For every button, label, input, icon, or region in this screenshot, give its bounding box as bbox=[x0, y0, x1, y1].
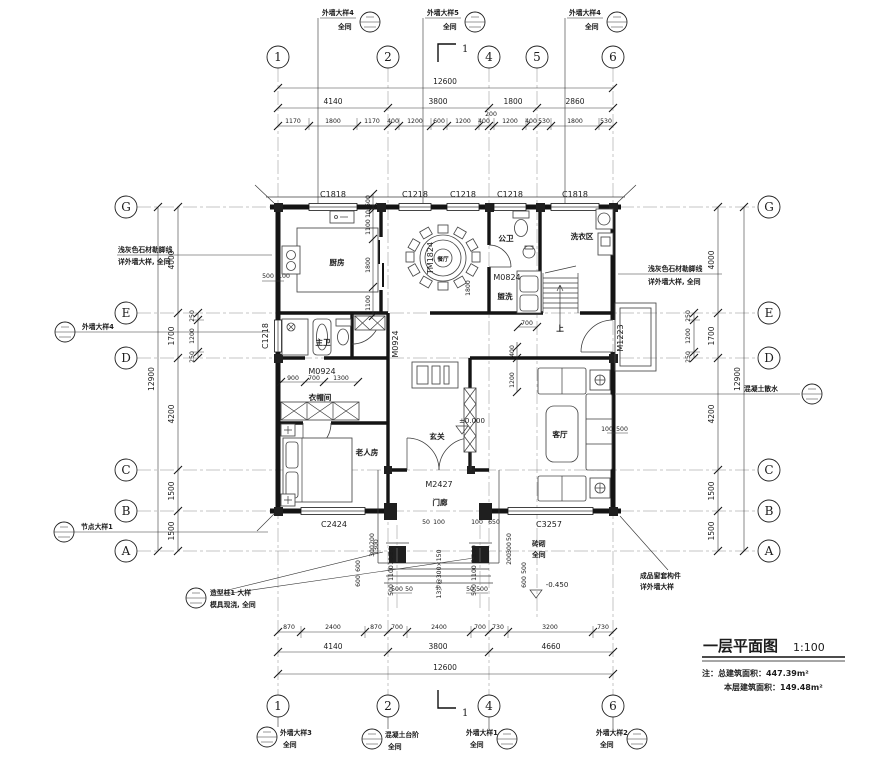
code-c1218-3: C1218 bbox=[497, 190, 523, 199]
grid-label-bottom: 2 bbox=[384, 699, 392, 713]
room-elder: 老人房 bbox=[356, 447, 379, 457]
callout-bot1-sub: 全同 bbox=[282, 740, 297, 749]
dim-right-total: 12900 bbox=[733, 367, 742, 391]
dim-porch-chain: 600 bbox=[521, 576, 528, 588]
dim-top-axis: 3800 bbox=[428, 97, 447, 106]
floor-area: 本层建筑面积：149.48m² bbox=[723, 682, 823, 692]
drawing-title: 一层平面图 bbox=[703, 637, 778, 655]
callout-bot2-label: 混凝土台阶 bbox=[385, 730, 419, 739]
door-m2427-entry bbox=[407, 438, 471, 470]
dim-kitchen: 1800 bbox=[365, 257, 372, 273]
dim-bottom-axis: 4140 bbox=[323, 642, 342, 651]
code-c1818-2: C1818 bbox=[562, 190, 588, 199]
dim-top-detail: 1200 bbox=[407, 118, 423, 125]
porch-dims: 500 50 50 500 200 300 600 600 50 300 200… bbox=[355, 533, 528, 599]
dim-top-detail: 1200 bbox=[455, 118, 471, 125]
code-m1223: M1223 bbox=[616, 324, 625, 351]
room-guest-bath: 公卫 bbox=[498, 234, 514, 243]
code-c2424: C2424 bbox=[321, 520, 347, 529]
dim-porch-col: 100 bbox=[388, 553, 395, 565]
grid-label-top: 1 bbox=[274, 50, 282, 64]
dim-left-detail: 250 bbox=[189, 351, 196, 363]
code-c1218-1: C1218 bbox=[402, 190, 428, 199]
dim-top-detail: 1170 bbox=[364, 118, 380, 125]
dim-top-detail: 200 bbox=[485, 111, 497, 118]
grid-label-bottom: 1 bbox=[274, 699, 282, 713]
guest-bath-fixtures bbox=[513, 211, 535, 258]
room-closet: 衣帽间 bbox=[309, 392, 332, 402]
dim-bottom-detail: 730 bbox=[492, 624, 504, 631]
window-c1218-dining-2 bbox=[447, 204, 479, 211]
grid-label-top: 5 bbox=[533, 50, 541, 64]
window-c1818-laundry bbox=[551, 204, 599, 211]
section-mark-top: 1 bbox=[462, 44, 468, 55]
grid-label-top: 6 bbox=[609, 50, 617, 64]
code-m0924-bath: M0924 bbox=[391, 330, 400, 357]
room-living: 客厅 bbox=[552, 429, 568, 439]
dim-living-bottom: 100 bbox=[471, 519, 483, 526]
grid-label-left: D bbox=[121, 351, 131, 365]
note-window-trim-1: 成品窗套构件 bbox=[640, 571, 681, 580]
dim-left-detail: 1200 bbox=[189, 328, 196, 344]
level-zero: ±0.000 bbox=[459, 417, 485, 425]
dim-right-axis: 1500 bbox=[707, 481, 716, 500]
door-m1223 bbox=[581, 320, 613, 352]
dim-kitchen: 1100 bbox=[365, 295, 372, 311]
note-prefix: 注： bbox=[702, 668, 718, 678]
note-stone-left-1: 浅灰色石材勒脚线 bbox=[118, 245, 173, 254]
dim-bottom-detail: 730 bbox=[597, 624, 609, 631]
room-kitchen: 厨房 bbox=[329, 257, 345, 267]
callout-bot4-label: 外墙大样2 bbox=[596, 728, 628, 737]
callout-column-label: 造型柱1 大样 bbox=[210, 588, 251, 597]
note-apron: 混凝土散水 bbox=[744, 384, 778, 393]
grid-label-left: B bbox=[122, 504, 131, 518]
level-porch: -0.450 bbox=[546, 581, 569, 589]
dim-bottom-detail: 700 bbox=[474, 624, 486, 631]
section-mark-bottom: 1 bbox=[462, 708, 468, 719]
master-bath-fixtures bbox=[282, 319, 351, 355]
grid-label-right: E bbox=[765, 306, 774, 320]
dim-left-axis: 1700 bbox=[167, 326, 176, 345]
grid-label-right: G bbox=[764, 200, 774, 214]
dim-living: 400 bbox=[509, 345, 516, 357]
grid-label-bottom: 4 bbox=[485, 699, 493, 713]
dim-top-detail: 530 bbox=[538, 118, 550, 125]
dim-right-axis: 1500 bbox=[707, 521, 716, 540]
dim-kitchen-left: 100 bbox=[278, 273, 290, 280]
window-c1218-guest-bath bbox=[494, 204, 526, 211]
stairs-up-label: 上 bbox=[556, 323, 564, 333]
dim-top-detail: 530 bbox=[600, 118, 612, 125]
room-porch: 门廊 bbox=[432, 497, 448, 507]
dim-dining-table: 1800 bbox=[465, 280, 472, 296]
room-foyer: 玄关 bbox=[429, 431, 445, 441]
grid-label-right: C bbox=[764, 463, 773, 477]
dim-top-detail: 400 bbox=[387, 118, 399, 125]
dim-closet: 1300 bbox=[333, 375, 349, 382]
stairs bbox=[543, 266, 578, 332]
stair-note: 13步@300×150 bbox=[435, 549, 443, 598]
dim-left-detail: 250 bbox=[189, 310, 196, 322]
total-area: 总建筑面积：447.39m² bbox=[718, 668, 809, 678]
dim-kitchen: 100 bbox=[365, 206, 372, 218]
dim-left-axis: 1500 bbox=[167, 521, 176, 540]
window-c1818-kitchen bbox=[309, 204, 357, 211]
dim-wash-width: 700 bbox=[521, 320, 533, 327]
grid-label-top: 4 bbox=[485, 50, 493, 64]
dim-living: 1200 bbox=[509, 372, 516, 388]
note-window-trim-2: 详外墙大样 bbox=[640, 582, 674, 591]
dim-top-detail: 400 bbox=[478, 118, 490, 125]
code-c1218-left: C1218 bbox=[261, 323, 270, 349]
dim-top-detail: 600 bbox=[433, 118, 445, 125]
callout-bot1-label: 外墙大样3 bbox=[280, 728, 312, 737]
callout-bot3-sub: 全同 bbox=[469, 740, 484, 749]
grid-label-left: E bbox=[122, 306, 131, 320]
dim-kitchen-left: 500 bbox=[262, 273, 274, 280]
drawing-scale: 1:100 bbox=[793, 641, 825, 654]
callout-column-sub: 模具现浇, 全同 bbox=[210, 600, 256, 609]
dim-porch-chain: 50 bbox=[506, 533, 513, 541]
callout-bot2-sub: 全同 bbox=[387, 742, 402, 751]
window-c3257-living bbox=[508, 508, 593, 515]
room-laundry: 洗衣区 bbox=[571, 231, 594, 241]
dim-top-detail: 1800 bbox=[567, 118, 583, 125]
callout-top2-label: 外墙大样5 bbox=[427, 8, 459, 17]
dim-right-axis: 4200 bbox=[707, 404, 716, 423]
dim-top-detail: 1170 bbox=[285, 118, 301, 125]
room-master-bath: 主卫 bbox=[315, 337, 331, 347]
callout-left2-label: 节点大样1 bbox=[81, 522, 113, 531]
code-m0824: M0824 bbox=[493, 273, 520, 282]
grid-label-right: B bbox=[765, 504, 774, 518]
living-room-furniture bbox=[538, 368, 612, 501]
dim-porch-col: 1100 bbox=[471, 565, 478, 581]
dim-closet: 700 bbox=[308, 375, 320, 382]
dim-bottom-detail: 870 bbox=[283, 624, 295, 631]
dim-right-detail: 1200 bbox=[685, 328, 692, 344]
note-stone-right-2: 详外墙大样, 全同 bbox=[648, 277, 701, 286]
dim-right-axis: 4000 bbox=[707, 250, 716, 269]
callout-top3-label: 外墙大样4 bbox=[569, 8, 601, 17]
callout-top1-sub: 全同 bbox=[337, 22, 352, 31]
grid-label-bottom: 6 bbox=[609, 699, 617, 713]
code-c1818-1: C1818 bbox=[320, 190, 346, 199]
code-c1218-2: C1218 bbox=[450, 190, 476, 199]
callout-top1-label: 外墙大样4 bbox=[322, 8, 354, 17]
dim-right-axis: 1700 bbox=[707, 326, 716, 345]
dim-living-right: 100 bbox=[601, 426, 613, 433]
dim-porch-chain: 500 bbox=[521, 562, 528, 574]
dim-bottom-detail: 2400 bbox=[325, 624, 341, 631]
note-brick-2: 全同 bbox=[531, 550, 546, 559]
dim-bottom-detail: 2400 bbox=[431, 624, 447, 631]
callout-bot4-sub: 全同 bbox=[599, 740, 614, 749]
dim-porch-chain: 300 bbox=[506, 542, 513, 554]
dim-top-detail: 400 bbox=[525, 118, 537, 125]
dim-porch-depth: 1300 bbox=[373, 539, 380, 555]
dim-bottom-detail: 700 bbox=[391, 624, 403, 631]
grid-label-left: C bbox=[121, 463, 130, 477]
door-m0824 bbox=[489, 245, 511, 267]
floor-plan-drawing: 12600 4140 3800 1800 2860 1170 1800 1170… bbox=[0, 0, 895, 759]
dim-top-axis: 1800 bbox=[503, 97, 522, 106]
closet-fixtures bbox=[281, 402, 359, 420]
dim-left-axis: 1500 bbox=[167, 481, 176, 500]
note-stone-right-1: 浅灰色石材勒脚线 bbox=[648, 264, 703, 273]
dim-closet: 900 bbox=[287, 375, 299, 382]
dim-porch-col: 500 bbox=[471, 584, 478, 596]
grid-label-left: A bbox=[121, 544, 131, 558]
kitchen-fixtures bbox=[282, 211, 378, 292]
dim-left-axis: 4200 bbox=[167, 404, 176, 423]
dim-bottom-detail: 870 bbox=[370, 624, 382, 631]
laundry-fixtures bbox=[596, 209, 613, 255]
dim-bottom-total: 12600 bbox=[433, 663, 457, 672]
window-c1218-master-bath bbox=[275, 320, 282, 352]
dim-elder-bottom: 50 bbox=[422, 519, 430, 526]
callout-bot3-label: 外墙大样1 bbox=[466, 728, 498, 737]
note-stone-left-2: 详外墙大样, 全同 bbox=[118, 257, 171, 266]
dim-porch-col: 1100 bbox=[388, 565, 395, 581]
dim-porch-chain: 600 bbox=[355, 560, 362, 572]
dim-right-detail: 250 bbox=[685, 310, 692, 322]
grid-label-right: D bbox=[764, 351, 774, 365]
note-brick-1: 砖砌 bbox=[532, 539, 546, 548]
dim-kitchen: 1100 bbox=[365, 219, 372, 235]
callout-top2-sub: 全同 bbox=[442, 22, 457, 31]
dim-porch-chain: 600 bbox=[355, 575, 362, 587]
dim-elder-bottom: 100 bbox=[433, 519, 445, 526]
floor-plan-sheet: 12600 4140 3800 1800 2860 1170 1800 1170… bbox=[0, 0, 895, 759]
window-c2424-elder bbox=[301, 508, 365, 515]
code-tm1824: TM1824 bbox=[426, 242, 435, 275]
window-c1218-dining-1 bbox=[399, 204, 431, 211]
title-block: 一层平面图 1:100 注： 总建筑面积：447.39m² 本层建筑面积：149… bbox=[702, 637, 845, 692]
callout-left1-label: 外墙大样4 bbox=[82, 322, 114, 331]
dim-living-bottom: 650 bbox=[488, 519, 500, 526]
grid-label-left: G bbox=[121, 200, 131, 214]
dim-top-detail: 1800 bbox=[325, 118, 341, 125]
dim-porch-col: 500 bbox=[388, 584, 395, 596]
room-wash: 盥洗 bbox=[497, 291, 513, 301]
dim-kitchen: 500 bbox=[365, 195, 372, 207]
code-m2427: M2427 bbox=[425, 480, 452, 489]
dim-right-detail: 250 bbox=[685, 351, 692, 363]
dim-bottom-axis: 3800 bbox=[428, 642, 447, 651]
dim-left-total: 12900 bbox=[147, 367, 156, 391]
room-dining: 餐厅 bbox=[436, 255, 449, 263]
grid-label-right: A bbox=[764, 544, 774, 558]
dim-bottom-detail: 3200 bbox=[542, 624, 558, 631]
elder-room-furniture bbox=[281, 424, 352, 506]
dim-bottom-axis: 4660 bbox=[541, 642, 560, 651]
foyer-furniture bbox=[412, 362, 458, 388]
grid-label-top: 2 bbox=[384, 50, 392, 64]
door-tm1824-sliding bbox=[379, 240, 383, 287]
dim-living-right: 500 bbox=[616, 426, 628, 433]
callout-top3-sub: 全同 bbox=[584, 22, 599, 31]
dim-top-total: 12600 bbox=[433, 77, 457, 86]
dim-porch-step: 50 bbox=[405, 586, 413, 593]
dim-top-detail: 1200 bbox=[502, 118, 518, 125]
code-c3257: C3257 bbox=[536, 520, 562, 529]
dim-top-axis: 4140 bbox=[323, 97, 342, 106]
dim-porch-chain: 200 bbox=[506, 553, 513, 565]
dim-top-axis: 2860 bbox=[565, 97, 584, 106]
dim-porch-col: 50 bbox=[471, 555, 478, 563]
